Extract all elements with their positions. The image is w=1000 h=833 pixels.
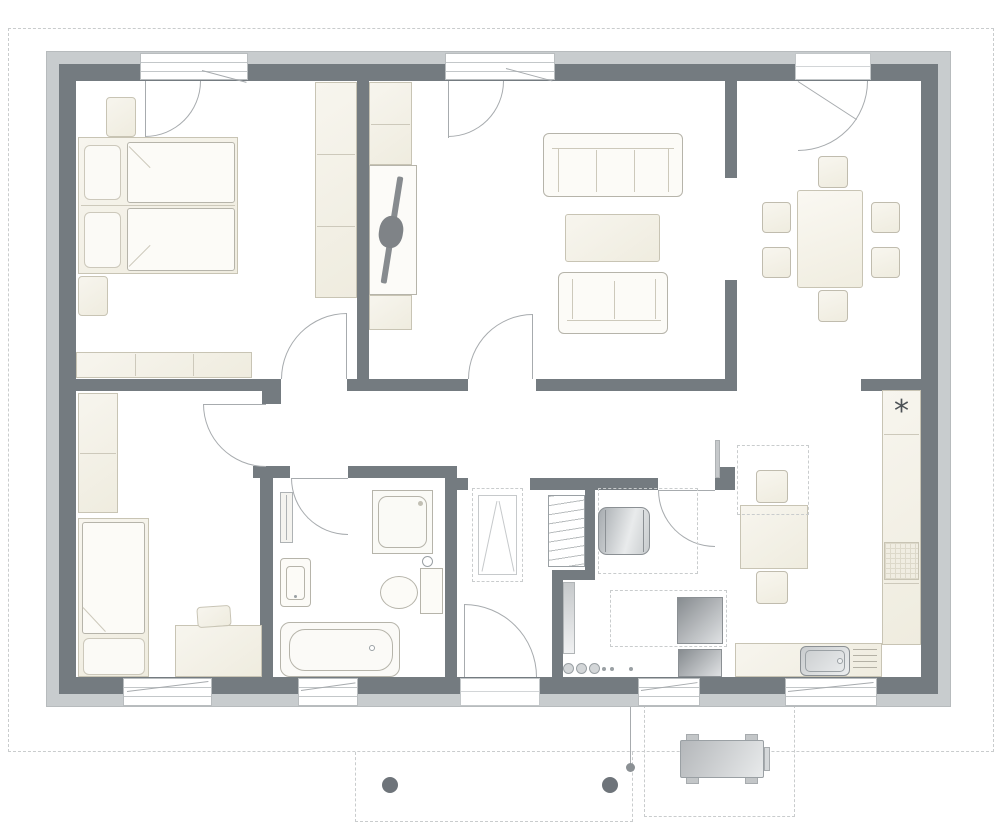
wall-living-dining-upper — [725, 81, 737, 178]
window-leaf-living — [448, 81, 449, 138]
desk-chair — [196, 605, 231, 628]
door-threshold-dining — [795, 53, 871, 80]
bathtub — [280, 622, 400, 677]
porch-post — [382, 777, 398, 793]
tv-stand — [377, 214, 406, 249]
door-leaf-living — [532, 314, 533, 379]
dining-chair — [871, 247, 900, 278]
wall-hall-north-a — [76, 379, 262, 391]
wall-hall-south-a — [445, 478, 468, 490]
wall-bathroom-north-a — [253, 466, 290, 478]
dining-chair — [762, 202, 791, 233]
nightstand — [106, 97, 136, 137]
tv-panel — [369, 165, 417, 295]
dining-chair — [818, 290, 848, 322]
wall-hall-north-b — [347, 379, 468, 391]
utility-connection — [589, 663, 600, 674]
connection-point — [610, 667, 614, 671]
wall-hall-north-c — [536, 379, 737, 391]
downpipe — [630, 707, 631, 765]
bench-side — [764, 747, 770, 771]
wall-bedroom1-living — [357, 81, 369, 391]
tub-drain — [369, 645, 375, 651]
door-leaf-bedroom1 — [346, 313, 347, 379]
wall-entry-tech-jog — [552, 570, 595, 580]
porch-post — [602, 777, 618, 793]
dining-chair — [762, 247, 791, 278]
water-heater — [598, 507, 650, 555]
toilet-cistern — [420, 568, 443, 614]
kitchen-sink — [800, 646, 850, 676]
connection-point — [629, 667, 633, 671]
pillow — [84, 145, 121, 200]
wall-living-dining-lower — [725, 280, 737, 391]
shower-drain — [418, 501, 423, 506]
wall-bathroom-east — [445, 466, 457, 677]
duvet — [127, 142, 235, 203]
basin-drain — [294, 595, 297, 598]
wardrobe — [78, 393, 118, 513]
double-bed — [78, 137, 238, 274]
utility-connection — [576, 663, 587, 674]
window-bedroom1 — [140, 53, 248, 80]
wall-door-jamb — [262, 379, 281, 404]
freezer-symbol: * — [882, 392, 921, 432]
wall-bathroom-north-b — [348, 466, 457, 478]
door-leaf-bathroom — [291, 478, 348, 479]
toilet-flush — [422, 556, 433, 567]
sofa-large — [543, 133, 683, 197]
dining-table — [797, 190, 863, 288]
upper-cabinet-outline — [737, 445, 809, 515]
washbasin — [280, 558, 311, 607]
toilet-bowl — [380, 576, 418, 609]
window-leaf-bedroom1 — [145, 81, 146, 138]
faucet — [837, 658, 843, 664]
hob — [884, 542, 919, 580]
tall-cabinet — [369, 82, 412, 165]
single-bed — [78, 518, 149, 677]
downpipe-outlet — [626, 763, 635, 772]
door-leaf-bedroom2 — [203, 404, 266, 405]
kitchen-chair — [756, 571, 788, 604]
connection-point — [602, 667, 606, 671]
duvet — [127, 208, 235, 271]
low-cabinet — [369, 295, 412, 330]
door-leaf-entrance — [464, 604, 465, 677]
wall-entry-tech-a — [585, 490, 595, 573]
door-leaf-kitchen — [715, 440, 720, 478]
sideboard — [76, 352, 252, 378]
pillow — [84, 212, 121, 268]
dining-chair — [871, 202, 900, 233]
desk — [175, 625, 262, 677]
shower — [372, 490, 433, 554]
bathroom-radiator — [280, 492, 293, 543]
coffee-table — [565, 214, 660, 262]
garden-bench — [680, 740, 764, 778]
floor-plan: * — [0, 0, 1000, 833]
wardrobe — [315, 82, 357, 298]
pipe-chase — [563, 582, 575, 654]
washing-machine — [677, 597, 723, 644]
dryer — [678, 649, 722, 677]
nightstand — [78, 276, 108, 316]
ladder-radiator — [548, 495, 585, 567]
dining-chair — [818, 156, 848, 188]
sofa-small — [558, 272, 668, 334]
utility-connection — [563, 663, 574, 674]
wall-entry-tech-b — [552, 580, 563, 677]
sink-drainer — [853, 649, 877, 672]
pillow — [83, 638, 145, 675]
door-threshold-entrance — [460, 678, 540, 706]
